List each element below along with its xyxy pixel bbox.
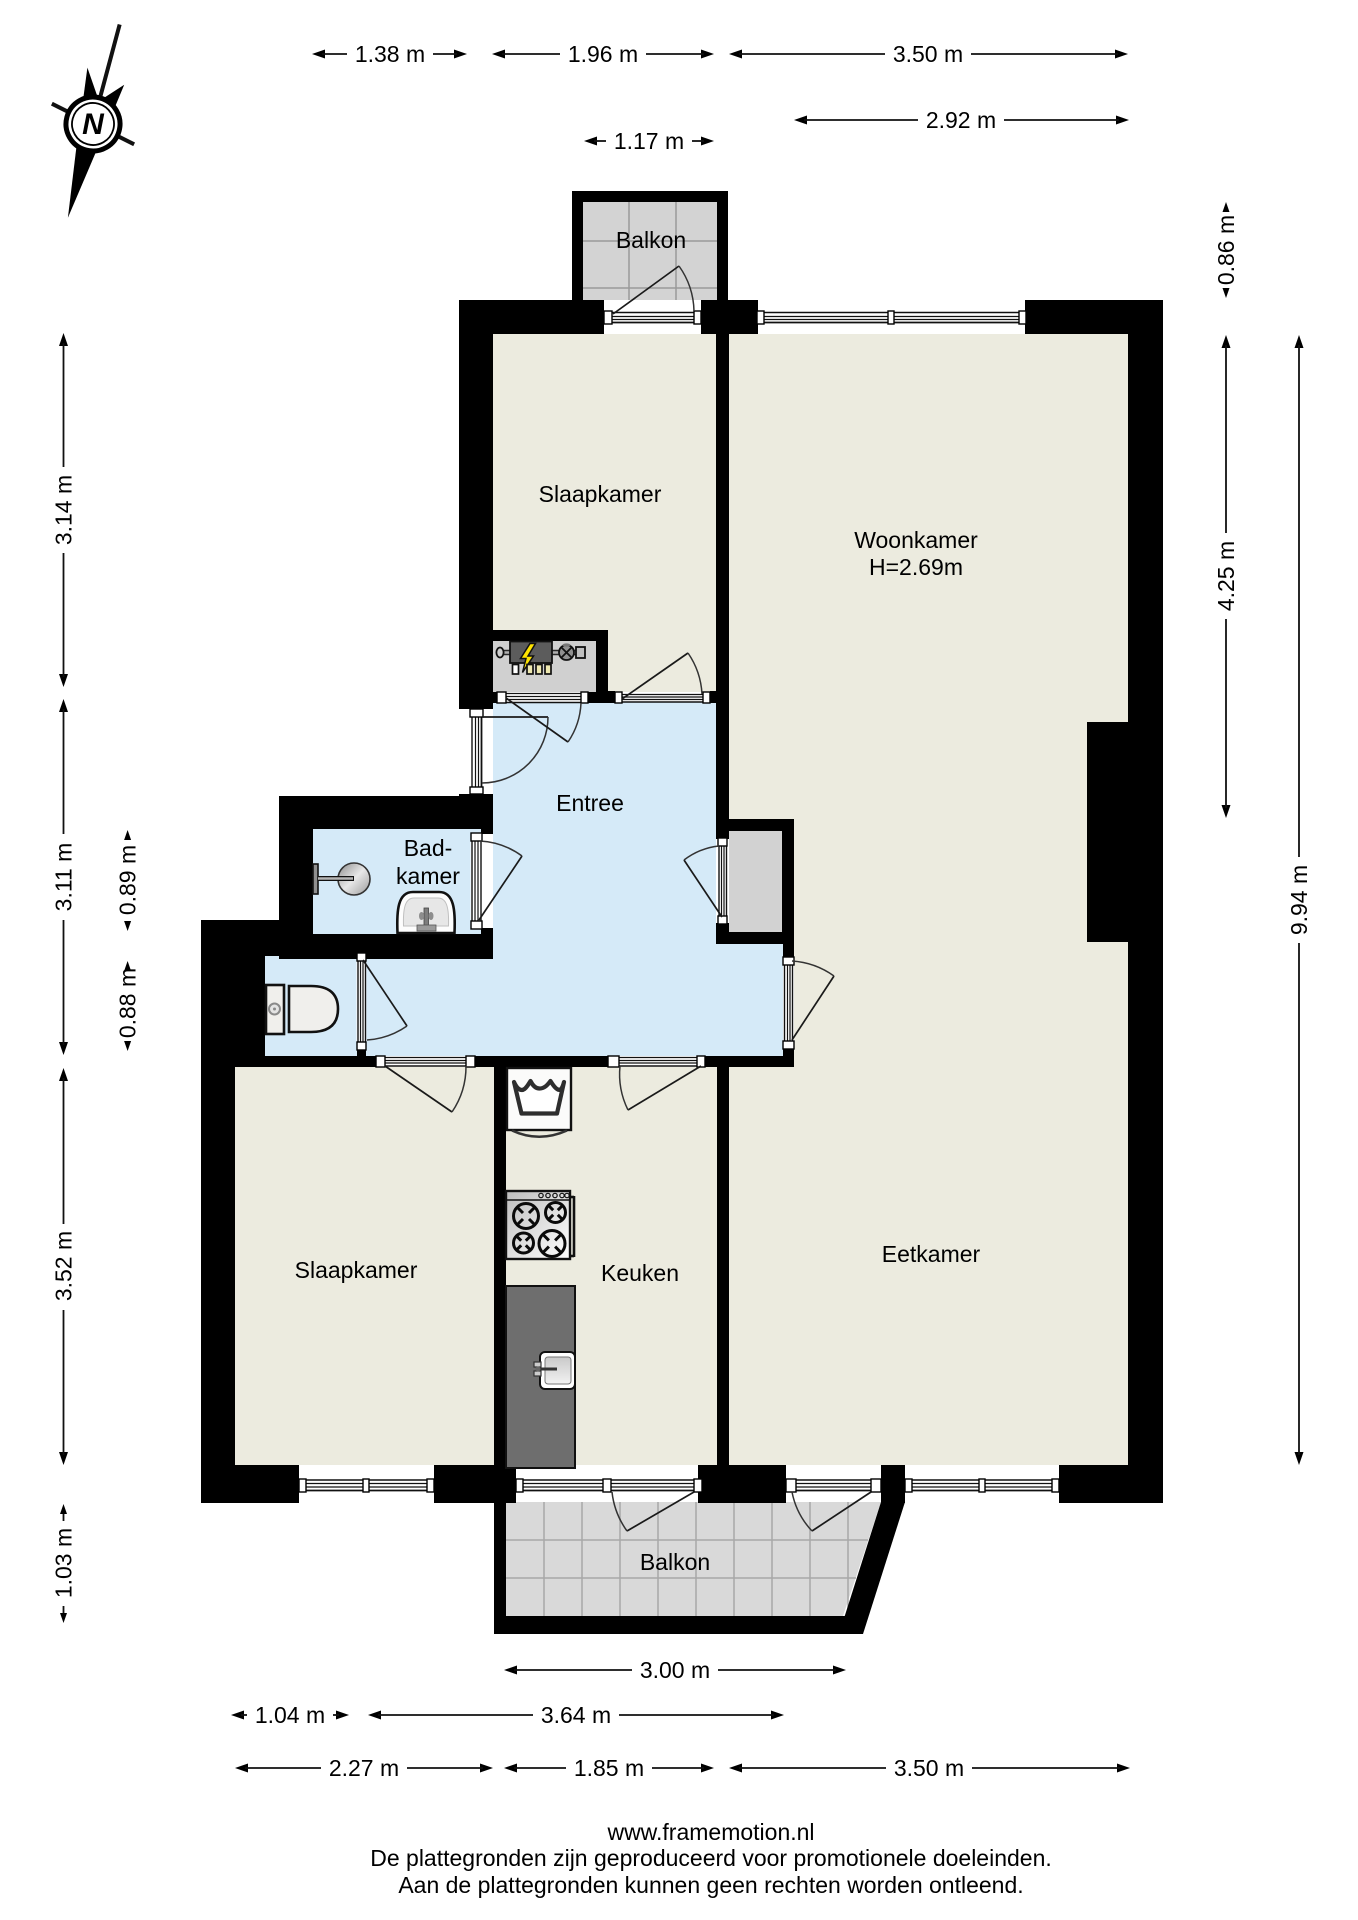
svg-text:4.25 m: 4.25 m xyxy=(1213,541,1239,611)
svg-text:1.85 m: 1.85 m xyxy=(574,1755,644,1781)
svg-text:Slaapkamer: Slaapkamer xyxy=(539,481,662,507)
svg-text:N: N xyxy=(82,108,105,141)
svg-text:3.14 m: 3.14 m xyxy=(51,475,77,545)
svg-text:3.64 m: 3.64 m xyxy=(541,1702,611,1728)
svg-text:1.17 m: 1.17 m xyxy=(614,128,684,154)
svg-text:3.50 m: 3.50 m xyxy=(893,41,963,67)
svg-text:www.framemotion.nl: www.framemotion.nl xyxy=(606,1819,814,1845)
svg-text:Aan de plattegronden kunnen ge: Aan de plattegronden kunnen geen rechten… xyxy=(398,1872,1023,1898)
svg-text:Woonkamer: Woonkamer xyxy=(854,527,978,553)
svg-text:Balkon: Balkon xyxy=(616,227,686,253)
svg-text:Entree: Entree xyxy=(556,790,624,816)
svg-text:9.94 m: 9.94 m xyxy=(1286,865,1312,935)
svg-text:0.88 m: 0.88 m xyxy=(115,968,141,1038)
svg-text:1.38 m: 1.38 m xyxy=(355,41,425,67)
svg-text:2.92 m: 2.92 m xyxy=(926,107,996,133)
svg-text:1.04 m: 1.04 m xyxy=(255,1702,325,1728)
svg-text:Keuken: Keuken xyxy=(601,1260,679,1286)
svg-text:Eetkamer: Eetkamer xyxy=(882,1241,981,1267)
svg-text:0.89 m: 0.89 m xyxy=(115,845,141,915)
svg-text:H=2.69m: H=2.69m xyxy=(869,554,963,580)
svg-text:Bad-: Bad- xyxy=(404,835,453,861)
svg-text:3.52 m: 3.52 m xyxy=(51,1231,77,1301)
svg-text:3.50 m: 3.50 m xyxy=(894,1755,964,1781)
svg-text:0.86 m: 0.86 m xyxy=(1213,215,1239,285)
svg-text:Balkon: Balkon xyxy=(640,1549,710,1575)
svg-text:Slaapkamer: Slaapkamer xyxy=(295,1257,418,1283)
svg-text:kamer: kamer xyxy=(396,863,460,889)
svg-text:2.27 m: 2.27 m xyxy=(329,1755,399,1781)
svg-text:1.96 m: 1.96 m xyxy=(568,41,638,67)
svg-text:1.03 m: 1.03 m xyxy=(51,1528,77,1598)
svg-text:3.11 m: 3.11 m xyxy=(51,843,77,912)
svg-text:3.00 m: 3.00 m xyxy=(640,1657,710,1683)
svg-text:De plattegronden zijn geproduc: De plattegronden zijn geproduceerd voor … xyxy=(370,1845,1052,1871)
